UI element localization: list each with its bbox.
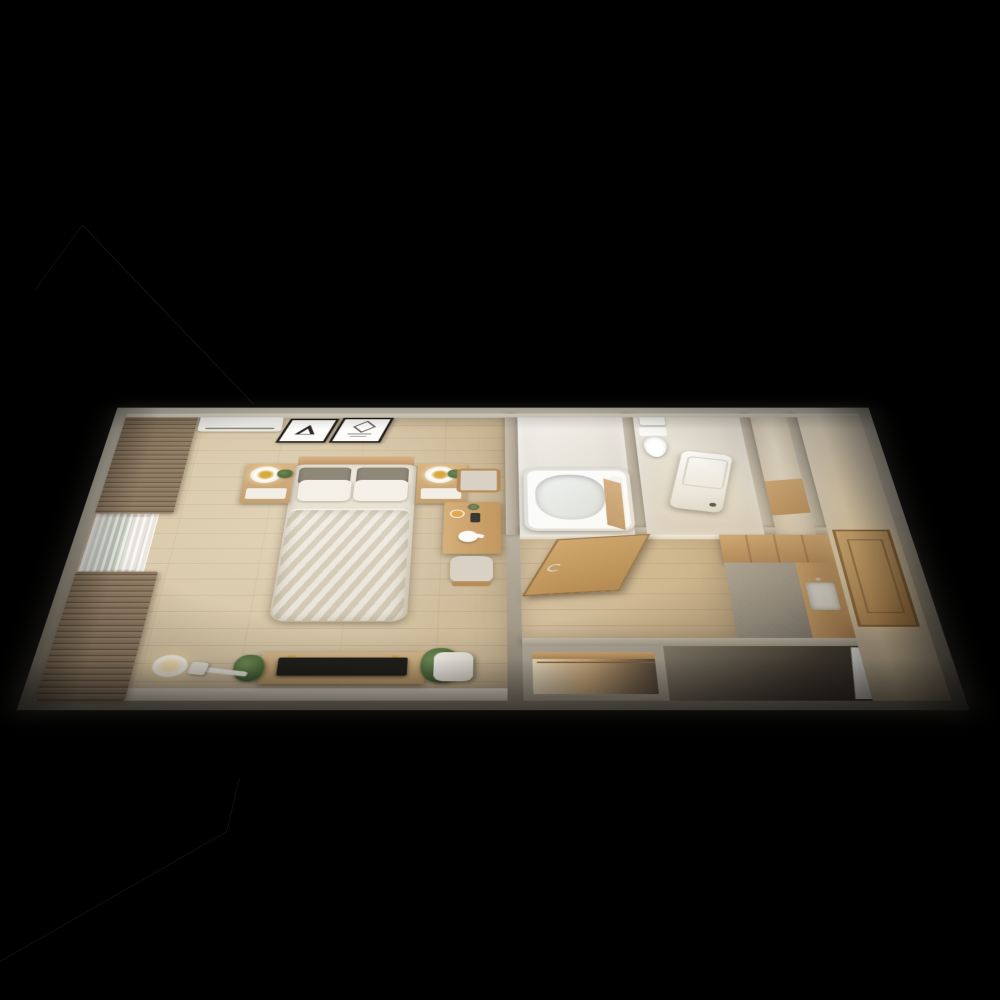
flower-vase	[468, 504, 480, 511]
air-conditioner	[197, 415, 284, 431]
background-silhouette-line	[0, 831, 227, 962]
coffee-set	[470, 513, 480, 522]
background-silhouette-line	[35, 224, 83, 290]
pillow-white	[353, 480, 409, 501]
background-silhouette-line	[82, 225, 253, 404]
ac-vent	[205, 428, 275, 429]
television	[276, 658, 408, 676]
chair-backrest	[452, 581, 491, 586]
diamond-art	[353, 421, 376, 433]
art-caption-line	[349, 436, 366, 437]
dining-table	[442, 502, 501, 554]
duvet	[271, 509, 410, 621]
tv-leg	[391, 656, 399, 658]
room-closet	[522, 646, 670, 701]
washer-knob	[709, 503, 717, 507]
toilet-tank	[639, 427, 668, 436]
nightstand-drawer	[245, 488, 287, 499]
storage-bin	[433, 652, 473, 681]
washer-lid	[681, 456, 729, 490]
dining-chair	[450, 556, 493, 582]
wall-face	[126, 414, 860, 418]
art-caption-line	[347, 433, 371, 434]
nightstand-drawer	[421, 488, 462, 499]
closet-shelf	[532, 652, 655, 659]
apartment-floorplan	[17, 408, 970, 710]
background-silhouette-line	[226, 778, 240, 833]
closet-hanging-rod	[537, 662, 655, 663]
vacuum-stick	[201, 667, 248, 677]
dining-chair	[456, 469, 500, 493]
kitchen-cabinets	[719, 535, 836, 563]
bathtub-basin	[535, 475, 607, 520]
interior-wall	[522, 638, 858, 646]
plate	[450, 510, 465, 518]
door-handle	[545, 563, 564, 572]
pillow-white	[296, 480, 352, 501]
tv-leg	[288, 656, 296, 658]
shadowed-wall-zone	[663, 646, 873, 701]
render-canvas	[0, 0, 1000, 1000]
kitchen-faucet	[815, 578, 821, 581]
